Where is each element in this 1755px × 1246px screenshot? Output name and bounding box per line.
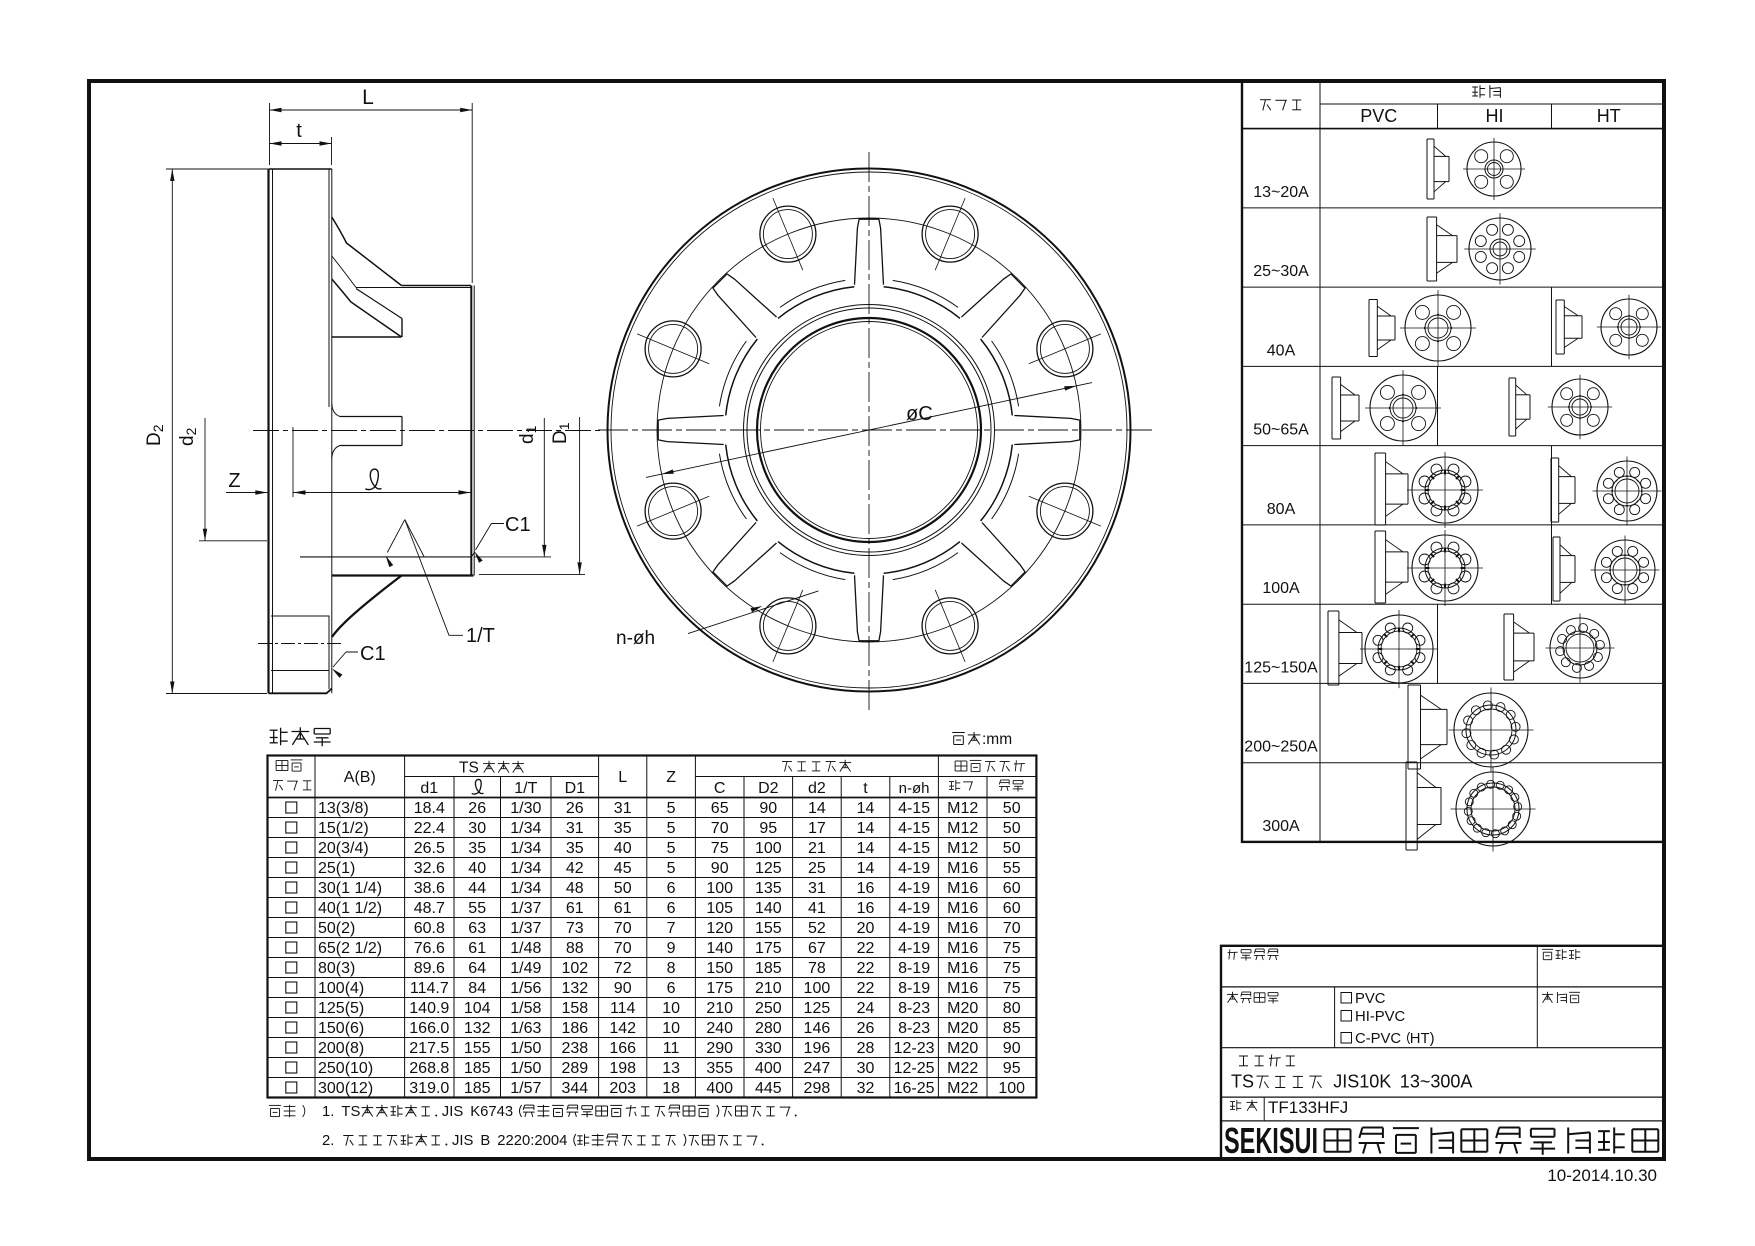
svg-text:30(1 1/4): 30(1 1/4) — [318, 880, 382, 897]
svg-text:n-øh: n-øh — [616, 628, 655, 649]
svg-text:125~150A: 125~150A — [1244, 659, 1318, 676]
svg-text:SEKISUI: SEKISUI — [1224, 1120, 1318, 1161]
svg-text:90: 90 — [614, 980, 632, 997]
svg-text:1/34: 1/34 — [510, 840, 541, 857]
svg-text:104: 104 — [464, 1000, 491, 1017]
svg-text:13~300A: 13~300A — [1400, 1072, 1473, 1092]
svg-text:114: 114 — [610, 1000, 636, 1017]
svg-text:445: 445 — [755, 1080, 782, 1097]
svg-text:140.9: 140.9 — [409, 1000, 449, 1017]
svg-text:100: 100 — [998, 1080, 1025, 1097]
svg-text:290: 290 — [706, 1040, 733, 1057]
svg-text:1/56: 1/56 — [510, 980, 541, 997]
svg-text:1/T: 1/T — [514, 780, 537, 797]
svg-text:D2: D2 — [144, 424, 166, 446]
svg-text:80: 80 — [1003, 1000, 1021, 1017]
svg-text:16: 16 — [857, 900, 875, 917]
svg-text:280: 280 — [755, 1020, 782, 1037]
svg-text:Z: Z — [666, 769, 676, 786]
svg-text:M20: M20 — [947, 1040, 978, 1057]
svg-text:7: 7 — [667, 920, 676, 937]
svg-text:4-19: 4-19 — [898, 920, 930, 937]
svg-text:61: 61 — [614, 900, 632, 917]
svg-text:72: 72 — [614, 960, 632, 977]
svg-text:67: 67 — [808, 940, 826, 957]
svg-text:42: 42 — [566, 860, 584, 877]
svg-text:10: 10 — [662, 1020, 680, 1037]
svg-text:d1: d1 — [420, 780, 438, 797]
svg-text:60.8: 60.8 — [414, 920, 445, 937]
svg-text:95: 95 — [1003, 1060, 1021, 1077]
svg-text:6: 6 — [667, 880, 676, 897]
svg-text:JIS10K: JIS10K — [1333, 1072, 1391, 1092]
svg-text:1/48: 1/48 — [510, 940, 541, 957]
svg-text:75: 75 — [1003, 980, 1021, 997]
svg-text:13~20A: 13~20A — [1253, 184, 1309, 201]
svg-text:64: 64 — [468, 960, 486, 977]
svg-text:78: 78 — [808, 960, 826, 977]
svg-text:6: 6 — [667, 900, 676, 917]
svg-text:1.: 1. — [322, 1104, 334, 1120]
svg-text:1/63: 1/63 — [510, 1020, 541, 1037]
svg-text:105: 105 — [706, 900, 733, 917]
svg-text:2220:2004: 2220:2004 — [497, 1133, 567, 1149]
svg-text:JIS: JIS — [442, 1104, 464, 1120]
svg-text:A(B): A(B) — [344, 769, 376, 786]
svg-text:D1: D1 — [550, 422, 572, 444]
svg-text:1/34: 1/34 — [510, 860, 541, 877]
svg-text:100: 100 — [804, 980, 831, 997]
svg-text:16: 16 — [857, 880, 875, 897]
svg-text:120: 120 — [706, 920, 733, 937]
svg-text:C1: C1 — [505, 514, 531, 536]
svg-text:8-19: 8-19 — [898, 960, 930, 977]
svg-text:35: 35 — [468, 840, 486, 857]
svg-text:65: 65 — [711, 800, 729, 817]
svg-text:22.4: 22.4 — [414, 820, 445, 837]
svg-text:M12: M12 — [947, 820, 978, 837]
svg-text:198: 198 — [609, 1060, 636, 1077]
svg-text:88: 88 — [566, 940, 584, 957]
svg-text:50: 50 — [1003, 840, 1021, 857]
svg-text:50: 50 — [614, 880, 632, 897]
svg-text:90: 90 — [711, 860, 729, 877]
svg-text:60: 60 — [1003, 880, 1021, 897]
svg-text:Z: Z — [228, 470, 240, 492]
svg-text:32.6: 32.6 — [414, 860, 445, 877]
svg-text:200(8): 200(8) — [318, 1040, 364, 1057]
svg-text:M16: M16 — [947, 920, 978, 937]
svg-text:125(5): 125(5) — [318, 1000, 364, 1017]
svg-text:100(4): 100(4) — [318, 980, 364, 997]
svg-text:M16: M16 — [947, 980, 978, 997]
svg-text:20(3/4): 20(3/4) — [318, 840, 369, 857]
svg-text:146: 146 — [804, 1020, 831, 1037]
svg-text:166: 166 — [609, 1040, 636, 1057]
svg-text:1/57: 1/57 — [510, 1080, 541, 1097]
svg-text:6: 6 — [667, 980, 676, 997]
svg-text:16-25: 16-25 — [894, 1080, 935, 1097]
svg-text:150: 150 — [706, 960, 733, 977]
svg-text:1/30: 1/30 — [510, 800, 541, 817]
svg-text:40A: 40A — [1267, 342, 1296, 359]
svg-text:125: 125 — [755, 860, 782, 877]
svg-text:217.5: 217.5 — [409, 1040, 449, 1057]
svg-text:8-19: 8-19 — [898, 980, 930, 997]
svg-text:203: 203 — [609, 1080, 636, 1097]
svg-text:22: 22 — [857, 940, 875, 957]
svg-text:40: 40 — [468, 860, 486, 877]
svg-text:26.5: 26.5 — [414, 840, 445, 857]
svg-text:14: 14 — [857, 840, 875, 857]
svg-text:TS: TS — [341, 1104, 360, 1120]
svg-text:250: 250 — [755, 1000, 782, 1017]
svg-text:63: 63 — [468, 920, 486, 937]
svg-text:100A: 100A — [1262, 580, 1300, 597]
svg-text:25~30A: 25~30A — [1253, 263, 1309, 280]
svg-text:50: 50 — [1003, 800, 1021, 817]
svg-text:M20: M20 — [947, 1020, 978, 1037]
svg-text:15(1/2): 15(1/2) — [318, 820, 369, 837]
svg-text:K6743: K6743 — [470, 1104, 513, 1120]
svg-text:48.7: 48.7 — [414, 900, 445, 917]
svg-text:1/50: 1/50 — [510, 1060, 541, 1077]
svg-text:26: 26 — [566, 800, 584, 817]
svg-text:61: 61 — [566, 900, 584, 917]
svg-text:80(3): 80(3) — [318, 960, 355, 977]
svg-text:319.0: 319.0 — [409, 1080, 449, 1097]
svg-text:5: 5 — [667, 800, 676, 817]
svg-text:M22: M22 — [947, 1080, 978, 1097]
svg-text:400: 400 — [706, 1080, 733, 1097]
svg-text:196: 196 — [804, 1040, 831, 1057]
svg-text:4-19: 4-19 — [898, 900, 930, 917]
svg-text:55: 55 — [1003, 860, 1021, 877]
svg-text:1/34: 1/34 — [510, 820, 541, 837]
svg-text:HT: HT — [1597, 106, 1621, 126]
svg-text:4-19: 4-19 — [898, 940, 930, 957]
svg-text:M16: M16 — [947, 960, 978, 977]
svg-text:100: 100 — [706, 880, 733, 897]
svg-text:40(1 1/2): 40(1 1/2) — [318, 900, 382, 917]
svg-text:14: 14 — [808, 800, 826, 817]
svg-text:102: 102 — [561, 960, 588, 977]
svg-text:268.8: 268.8 — [409, 1060, 449, 1077]
svg-text:8: 8 — [667, 960, 676, 977]
svg-text:132: 132 — [464, 1020, 491, 1037]
svg-text:31: 31 — [808, 880, 826, 897]
svg-text:175: 175 — [755, 940, 782, 957]
svg-text:50(2): 50(2) — [318, 920, 355, 937]
svg-text:24: 24 — [857, 1000, 875, 1017]
svg-text:20: 20 — [857, 920, 875, 937]
svg-text:C1: C1 — [360, 643, 386, 665]
svg-text:90: 90 — [759, 800, 777, 817]
svg-text:114.7: 114.7 — [410, 980, 449, 997]
svg-text:25: 25 — [808, 860, 826, 877]
svg-text:1/58: 1/58 — [510, 1000, 541, 1017]
svg-text:95: 95 — [759, 820, 777, 837]
svg-text:31: 31 — [566, 820, 584, 837]
svg-text:140: 140 — [755, 900, 782, 917]
svg-text:60: 60 — [1003, 900, 1021, 917]
svg-text:150(6): 150(6) — [318, 1020, 364, 1037]
svg-text:185: 185 — [755, 960, 782, 977]
svg-text:4-15: 4-15 — [898, 820, 930, 837]
svg-text:30: 30 — [468, 820, 486, 837]
svg-text:10: 10 — [662, 1000, 680, 1017]
svg-text:70: 70 — [614, 940, 632, 957]
svg-text:330: 330 — [755, 1040, 782, 1057]
svg-text:85: 85 — [1003, 1020, 1021, 1037]
svg-text:21: 21 — [808, 840, 826, 857]
svg-text:158: 158 — [561, 1000, 588, 1017]
svg-text:1/34: 1/34 — [510, 880, 541, 897]
svg-text:38.6: 38.6 — [414, 880, 445, 897]
svg-text:186: 186 — [561, 1020, 588, 1037]
svg-text:5: 5 — [667, 860, 676, 877]
svg-text:31: 31 — [614, 800, 632, 817]
svg-text:8-23: 8-23 — [898, 1000, 930, 1017]
svg-text:50~65A: 50~65A — [1253, 422, 1309, 439]
svg-text:250(10): 250(10) — [318, 1060, 373, 1077]
svg-text:355: 355 — [706, 1060, 733, 1077]
svg-text:1/37: 1/37 — [510, 920, 541, 937]
svg-text:52: 52 — [808, 920, 826, 937]
svg-text:166.0: 166.0 — [409, 1020, 449, 1037]
svg-text:d2: d2 — [177, 427, 199, 446]
svg-text:30: 30 — [857, 1060, 875, 1077]
svg-text:344: 344 — [561, 1080, 588, 1097]
svg-text:HI: HI — [1486, 106, 1504, 126]
svg-text:M16: M16 — [947, 900, 978, 917]
svg-text:L: L — [362, 86, 374, 109]
svg-text:135: 135 — [755, 880, 782, 897]
svg-text:70: 70 — [711, 820, 729, 837]
svg-text:28: 28 — [857, 1040, 875, 1057]
svg-text:M16: M16 — [947, 860, 978, 877]
svg-text:22: 22 — [857, 960, 875, 977]
svg-text:12-25: 12-25 — [894, 1060, 935, 1077]
svg-text:n-øh: n-øh — [899, 780, 930, 797]
svg-text::mm: :mm — [982, 731, 1012, 748]
svg-text:75: 75 — [1003, 940, 1021, 957]
svg-text:90: 90 — [1003, 1040, 1021, 1057]
svg-text:185: 185 — [464, 1080, 491, 1097]
svg-text:25(1): 25(1) — [318, 860, 355, 877]
svg-text:18: 18 — [662, 1080, 680, 1097]
svg-text:M12: M12 — [947, 800, 978, 817]
svg-text:12-23: 12-23 — [894, 1040, 935, 1057]
svg-text:140: 140 — [706, 940, 733, 957]
svg-text:10-2014.10.30: 10-2014.10.30 — [1547, 1166, 1657, 1185]
svg-text:289: 289 — [561, 1060, 588, 1077]
svg-text:70: 70 — [1003, 920, 1021, 937]
svg-text:d2: d2 — [808, 780, 826, 797]
svg-text:210: 210 — [706, 1000, 733, 1017]
svg-text:18.4: 18.4 — [414, 800, 445, 817]
svg-text:t: t — [863, 780, 868, 797]
svg-text:26: 26 — [468, 800, 486, 817]
svg-text:L: L — [618, 769, 627, 786]
svg-text:300A: 300A — [1262, 818, 1300, 835]
svg-text:PVC: PVC — [1360, 106, 1397, 126]
svg-text:155: 155 — [755, 920, 782, 937]
svg-text:D2: D2 — [758, 780, 779, 797]
svg-text:75: 75 — [711, 840, 729, 857]
svg-text:5: 5 — [667, 820, 676, 837]
svg-text:PVC: PVC — [1355, 991, 1386, 1007]
svg-text:35: 35 — [614, 820, 632, 837]
svg-text:M22: M22 — [947, 1060, 978, 1077]
svg-text:247: 247 — [804, 1060, 831, 1077]
svg-text:50: 50 — [1003, 820, 1021, 837]
svg-text:200~250A: 200~250A — [1244, 739, 1318, 756]
svg-text:8-23: 8-23 — [898, 1020, 930, 1037]
svg-text:14: 14 — [857, 820, 875, 837]
svg-text:41: 41 — [808, 900, 826, 917]
svg-text:132: 132 — [561, 980, 588, 997]
svg-text:35: 35 — [566, 840, 584, 857]
svg-text:d1: d1 — [517, 425, 539, 444]
svg-text:75: 75 — [1003, 960, 1021, 977]
svg-text:55: 55 — [468, 900, 486, 917]
svg-text:TS: TS — [1231, 1072, 1254, 1092]
svg-text:240: 240 — [706, 1020, 733, 1037]
svg-text:73: 73 — [566, 920, 584, 937]
svg-text:D1: D1 — [565, 780, 586, 797]
svg-text:142: 142 — [609, 1020, 636, 1037]
svg-text:61: 61 — [468, 940, 486, 957]
svg-text:238: 238 — [561, 1040, 588, 1057]
svg-text:HI-PVC: HI-PVC — [1355, 1009, 1406, 1025]
svg-text:84: 84 — [468, 980, 486, 997]
svg-text:32: 32 — [857, 1080, 875, 1097]
svg-text:TS: TS — [459, 760, 479, 777]
svg-text:M16: M16 — [947, 880, 978, 897]
svg-text:2.: 2. — [322, 1133, 334, 1149]
svg-text:HT): HT) — [1410, 1031, 1435, 1047]
svg-text:300(12): 300(12) — [318, 1080, 373, 1097]
svg-text:4-15: 4-15 — [898, 800, 930, 817]
svg-text:40: 40 — [614, 840, 632, 857]
svg-text:70: 70 — [614, 920, 632, 937]
svg-text:C: C — [714, 780, 726, 797]
svg-text:1/49: 1/49 — [510, 960, 541, 977]
svg-text:155: 155 — [464, 1040, 491, 1057]
svg-text:13: 13 — [662, 1060, 680, 1077]
svg-text:298: 298 — [804, 1080, 831, 1097]
svg-text:1/T: 1/T — [466, 625, 495, 647]
svg-text:65(2 1/2): 65(2 1/2) — [318, 940, 382, 957]
svg-text:44: 44 — [468, 880, 486, 897]
svg-text:M12: M12 — [947, 840, 978, 857]
svg-text:125: 125 — [804, 1000, 831, 1017]
svg-text:76.6: 76.6 — [414, 940, 445, 957]
svg-text:26: 26 — [857, 1020, 875, 1037]
svg-text:89.6: 89.6 — [414, 960, 445, 977]
svg-text:øC: øC — [906, 403, 933, 425]
svg-text:4-15: 4-15 — [898, 840, 930, 857]
svg-text:14: 14 — [857, 800, 875, 817]
svg-text:11: 11 — [663, 1040, 680, 1057]
svg-text:TF133HFJ: TF133HFJ — [1268, 1098, 1348, 1117]
svg-text:80A: 80A — [1267, 501, 1296, 518]
svg-text:14: 14 — [857, 860, 875, 877]
svg-text:100: 100 — [755, 840, 782, 857]
svg-text:M16: M16 — [947, 940, 978, 957]
svg-text:5: 5 — [667, 840, 676, 857]
svg-text:45: 45 — [614, 860, 632, 877]
svg-text:210: 210 — [755, 980, 782, 997]
svg-text:1/37: 1/37 — [510, 900, 541, 917]
svg-text:1/50: 1/50 — [510, 1040, 541, 1057]
svg-text:B: B — [480, 1133, 490, 1149]
svg-text:13(3/8): 13(3/8) — [318, 800, 369, 817]
svg-text:4-19: 4-19 — [898, 860, 930, 877]
svg-text:185: 185 — [464, 1060, 491, 1077]
svg-text:t: t — [296, 120, 302, 142]
svg-text:JIS: JIS — [452, 1133, 474, 1149]
svg-text:400: 400 — [755, 1060, 782, 1077]
svg-text:C-PVC: C-PVC — [1355, 1031, 1401, 1047]
svg-text:22: 22 — [857, 980, 875, 997]
svg-text:175: 175 — [706, 980, 733, 997]
svg-text:9: 9 — [667, 940, 676, 957]
svg-text:48: 48 — [566, 880, 584, 897]
svg-text:4-19: 4-19 — [898, 880, 930, 897]
svg-text:17: 17 — [808, 820, 826, 837]
svg-text:M20: M20 — [947, 1000, 978, 1017]
